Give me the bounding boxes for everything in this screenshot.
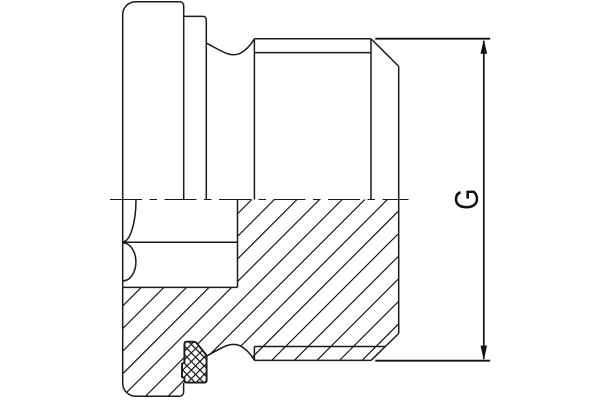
svg-text:G: G bbox=[450, 189, 486, 210]
